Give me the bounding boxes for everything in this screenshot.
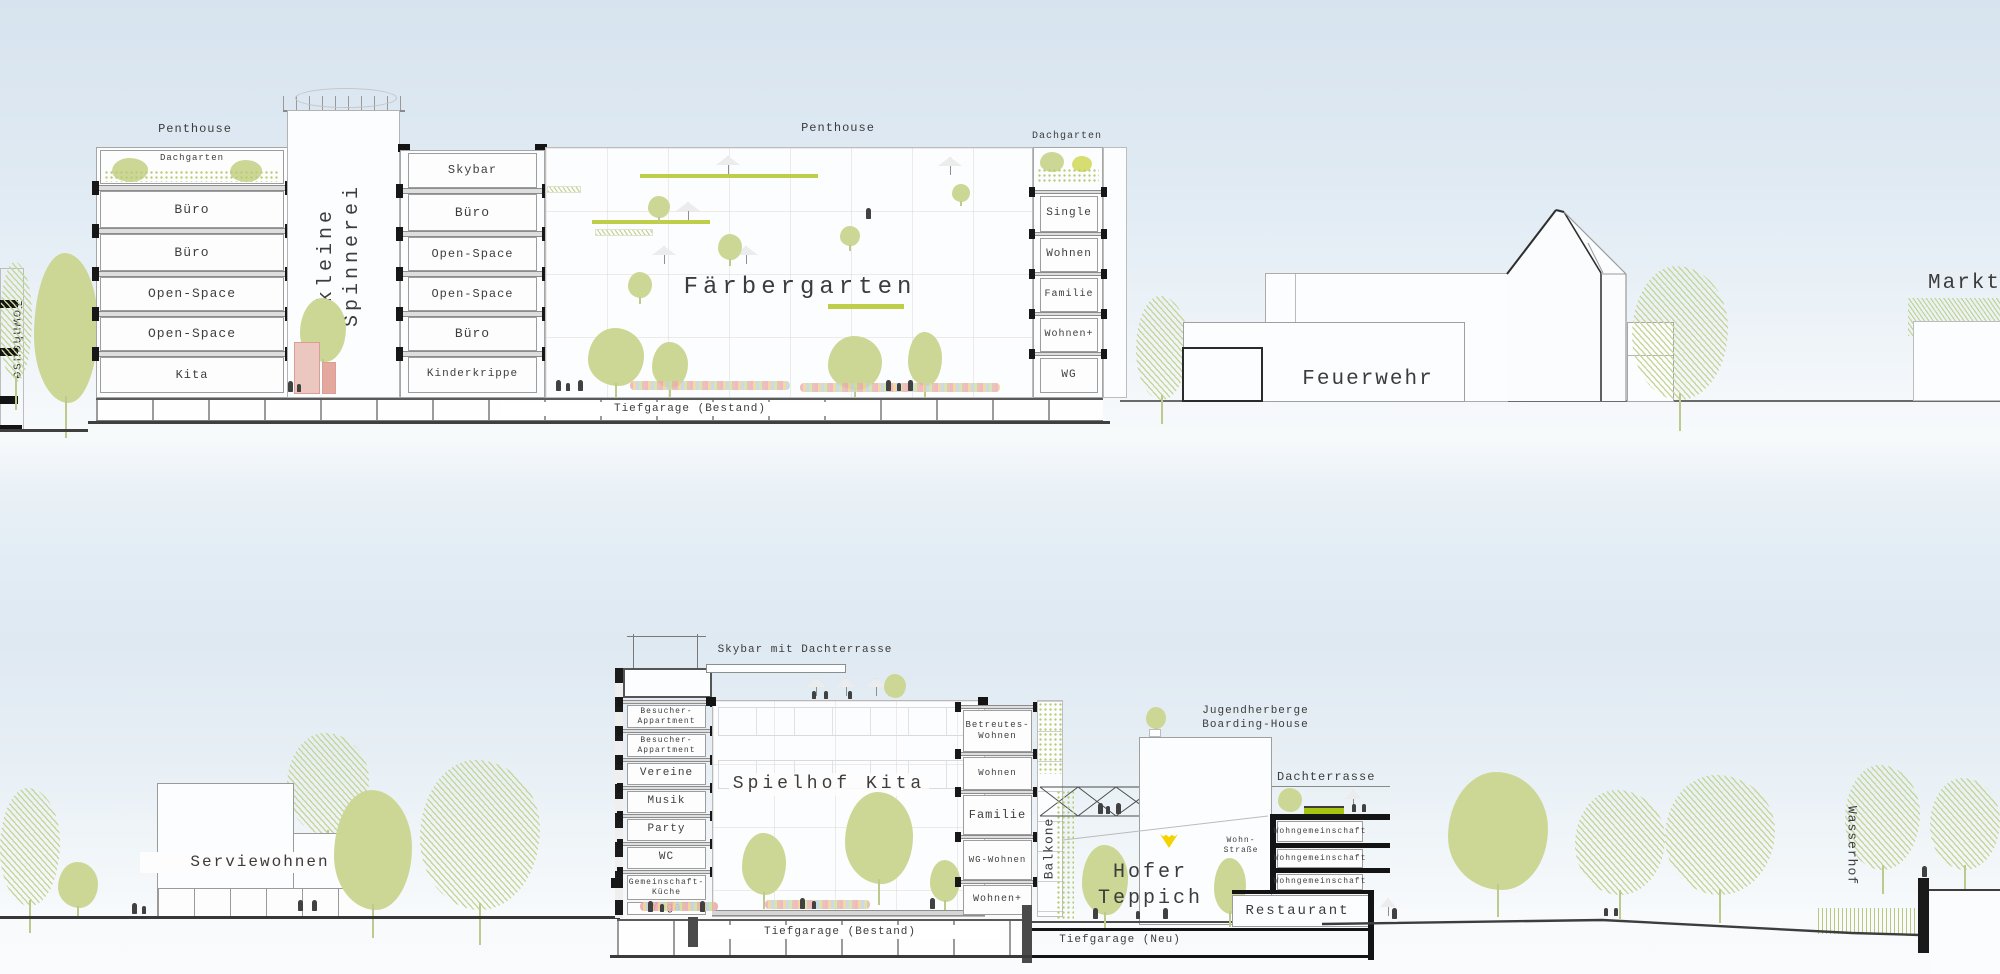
dachgarten-right-label: Dachgarten xyxy=(1017,130,1117,143)
facade-joint xyxy=(1295,274,1296,322)
person xyxy=(1093,908,1098,919)
slab xyxy=(955,752,1039,756)
tiefgarage-bestand-bottom-label: Tiefgarage (Bestand) xyxy=(680,925,1000,939)
skybar-deck xyxy=(706,664,846,673)
dachterrasse-label: Dachterrasse xyxy=(1277,770,1367,786)
parapet-cap xyxy=(706,697,716,706)
person xyxy=(297,384,301,392)
courtyard-ground xyxy=(1032,921,1242,923)
planter-pot xyxy=(1149,729,1161,737)
person xyxy=(908,380,913,391)
terrace-green xyxy=(640,174,818,178)
person xyxy=(1922,866,1927,877)
person xyxy=(312,900,317,911)
feuerwehr-gate xyxy=(1182,347,1263,402)
umbrella-icon xyxy=(1344,790,1362,799)
slab xyxy=(617,814,716,818)
umbrella-icon xyxy=(652,246,676,255)
umbrella-icon xyxy=(836,678,856,687)
floor-buero: Büro xyxy=(100,234,284,271)
slab xyxy=(955,790,1039,794)
tiefgarage-bestand-top-label: Tiefgarage (Bestand) xyxy=(500,402,880,416)
floor-skybar: Skybar xyxy=(408,153,537,188)
roof-potted-tree xyxy=(1146,707,1166,729)
tree xyxy=(845,792,913,884)
tree xyxy=(0,788,60,906)
ground-line-bottom-left xyxy=(0,916,620,919)
roof-planting xyxy=(104,170,280,182)
tiefgarage-neu-label: Tiefgarage (Neu) xyxy=(1040,933,1200,947)
terrace-green xyxy=(828,304,904,309)
slab xyxy=(1029,312,1107,316)
floor-vereine: Vereine xyxy=(627,763,706,785)
umbrella-icon xyxy=(938,157,962,166)
slab xyxy=(955,835,1039,839)
person xyxy=(930,898,935,909)
tower-top-floor xyxy=(623,668,712,698)
person xyxy=(660,904,664,912)
roof-mast xyxy=(633,634,634,668)
play-structure xyxy=(322,362,336,394)
planting-strip xyxy=(547,186,581,193)
floor-single: Single xyxy=(1040,196,1098,232)
person xyxy=(142,906,146,914)
person xyxy=(298,900,303,911)
floor-wohnen: Wohnen xyxy=(1040,238,1098,272)
tree xyxy=(420,760,540,910)
wohnstrasse-label: Wohn- Straße xyxy=(1205,836,1277,857)
terrace-green xyxy=(592,220,710,224)
person xyxy=(886,380,891,391)
person xyxy=(800,898,805,909)
roof-tree xyxy=(884,674,906,698)
hall-base-slab xyxy=(712,910,985,916)
person xyxy=(578,380,583,391)
floor-buero: Büro xyxy=(100,191,284,228)
slab xyxy=(617,842,716,846)
roof-mast xyxy=(697,634,698,668)
spielhof-label: Spielhof Kita xyxy=(729,773,929,796)
person xyxy=(1163,908,1168,919)
slab xyxy=(955,705,1039,709)
slab xyxy=(1029,352,1107,356)
person xyxy=(812,901,816,909)
tree xyxy=(0,262,32,382)
umbrella-icon xyxy=(716,156,740,165)
floor-wc: WC xyxy=(627,847,706,869)
tree xyxy=(34,253,98,403)
floor-openspace: Open-Space xyxy=(100,317,284,351)
floor-buero: Büro xyxy=(408,317,537,351)
hofer-teppich-label: Hofer Teppich xyxy=(1058,860,1243,912)
penthouse-left-label: Penthouse xyxy=(110,122,280,138)
tree xyxy=(58,862,98,908)
floor-openspace: Open-Space xyxy=(408,237,537,271)
person xyxy=(897,383,901,391)
slab xyxy=(617,786,716,790)
terrace-tree xyxy=(1278,788,1302,812)
wg-slab xyxy=(1270,814,1390,820)
baseline xyxy=(88,421,1110,424)
person xyxy=(866,208,871,219)
floor-besucher-2: Besucher- Appartment xyxy=(627,734,706,757)
person xyxy=(812,691,816,699)
slab xyxy=(1029,272,1107,276)
slab xyxy=(617,758,716,762)
penthouse-center-label: Penthouse xyxy=(738,121,938,137)
balcony-planting xyxy=(1038,702,1062,774)
slab xyxy=(617,729,716,733)
floor-party: Party xyxy=(627,819,706,841)
floor-familie: Familie xyxy=(1040,278,1098,312)
umbrella-icon xyxy=(676,202,700,211)
markt-building xyxy=(1913,321,2000,401)
terrace-line xyxy=(1272,786,1390,787)
skybar-label: Skybar mit Dachterrasse xyxy=(700,643,910,657)
planting-strip xyxy=(595,229,653,236)
serviewohnen-colonnade xyxy=(157,888,374,917)
person xyxy=(288,381,293,392)
slab xyxy=(617,700,716,704)
tree xyxy=(1136,296,1188,400)
flower-bed xyxy=(765,900,870,909)
floor-wgwohnen: WG-Wohnen xyxy=(963,840,1032,880)
floor-kita: Kita xyxy=(100,357,284,393)
person xyxy=(848,691,852,699)
slab xyxy=(1029,190,1107,194)
potted-tree xyxy=(648,196,670,218)
umbrella-icon xyxy=(866,678,886,687)
floor-openspace: Open-Space xyxy=(100,277,284,311)
floor-wohnenplus: Wohnen+ xyxy=(1040,318,1098,352)
tree xyxy=(588,328,644,386)
person xyxy=(566,383,570,391)
window-band xyxy=(718,707,979,736)
potted-tree xyxy=(840,226,860,246)
person xyxy=(556,380,561,391)
serviewohnen-upper xyxy=(157,783,294,889)
jugendherberge-label: Jugendherberge Boarding-House xyxy=(1178,704,1333,733)
garage-wall xyxy=(688,917,698,947)
roof-beam xyxy=(627,636,706,637)
person xyxy=(1362,804,1366,812)
feuerwehr-label: Feuerwehr xyxy=(1268,366,1468,393)
floor-betreutes: Betreutes- Wohnen xyxy=(963,710,1032,752)
umbrella-icon xyxy=(806,678,826,687)
roof-planting xyxy=(1037,168,1099,184)
faerbergarten-label: Färbergarten xyxy=(600,272,1000,303)
slab xyxy=(1029,232,1107,236)
floor-musik: Musik xyxy=(627,791,706,813)
tree xyxy=(828,336,882,390)
floor-besucher-1: Besucher- Appartment xyxy=(627,705,706,728)
architecture-section-drawing: Townhouse Penthouse Dachgarten Büro Büro… xyxy=(0,0,2000,974)
tree xyxy=(742,833,786,895)
person xyxy=(700,901,705,912)
floor-wohnen: Wohnen xyxy=(963,757,1032,790)
wg-slab xyxy=(1270,843,1390,848)
potted-tree xyxy=(718,234,742,260)
garage-base xyxy=(610,955,1034,958)
floor-familie: Familie xyxy=(963,795,1032,835)
person xyxy=(132,903,137,914)
floor-wg-1: Wohngemeinschaft xyxy=(1277,821,1363,842)
tree xyxy=(1632,266,1728,400)
floor-buero: Büro xyxy=(408,194,537,231)
tree xyxy=(908,332,942,386)
floor-kueche: Gemeinschaft- Küche xyxy=(627,875,706,900)
slab xyxy=(617,870,716,874)
flower-bed xyxy=(630,381,790,390)
slab xyxy=(955,880,1039,884)
floor-wg: WG xyxy=(1040,358,1098,393)
person xyxy=(1136,911,1140,919)
person xyxy=(648,901,653,912)
tree xyxy=(334,790,412,910)
potted-tree xyxy=(952,184,970,202)
floor-kinderkrippe: Kinderkrippe xyxy=(408,357,537,393)
tree xyxy=(1930,778,2000,870)
person xyxy=(1352,804,1356,812)
person xyxy=(824,691,828,699)
floor-openspace: Open-Space xyxy=(408,277,537,311)
ground-profile-right xyxy=(1322,860,2000,974)
ground-line xyxy=(0,429,88,432)
markt-label: Markt xyxy=(1928,270,2000,297)
